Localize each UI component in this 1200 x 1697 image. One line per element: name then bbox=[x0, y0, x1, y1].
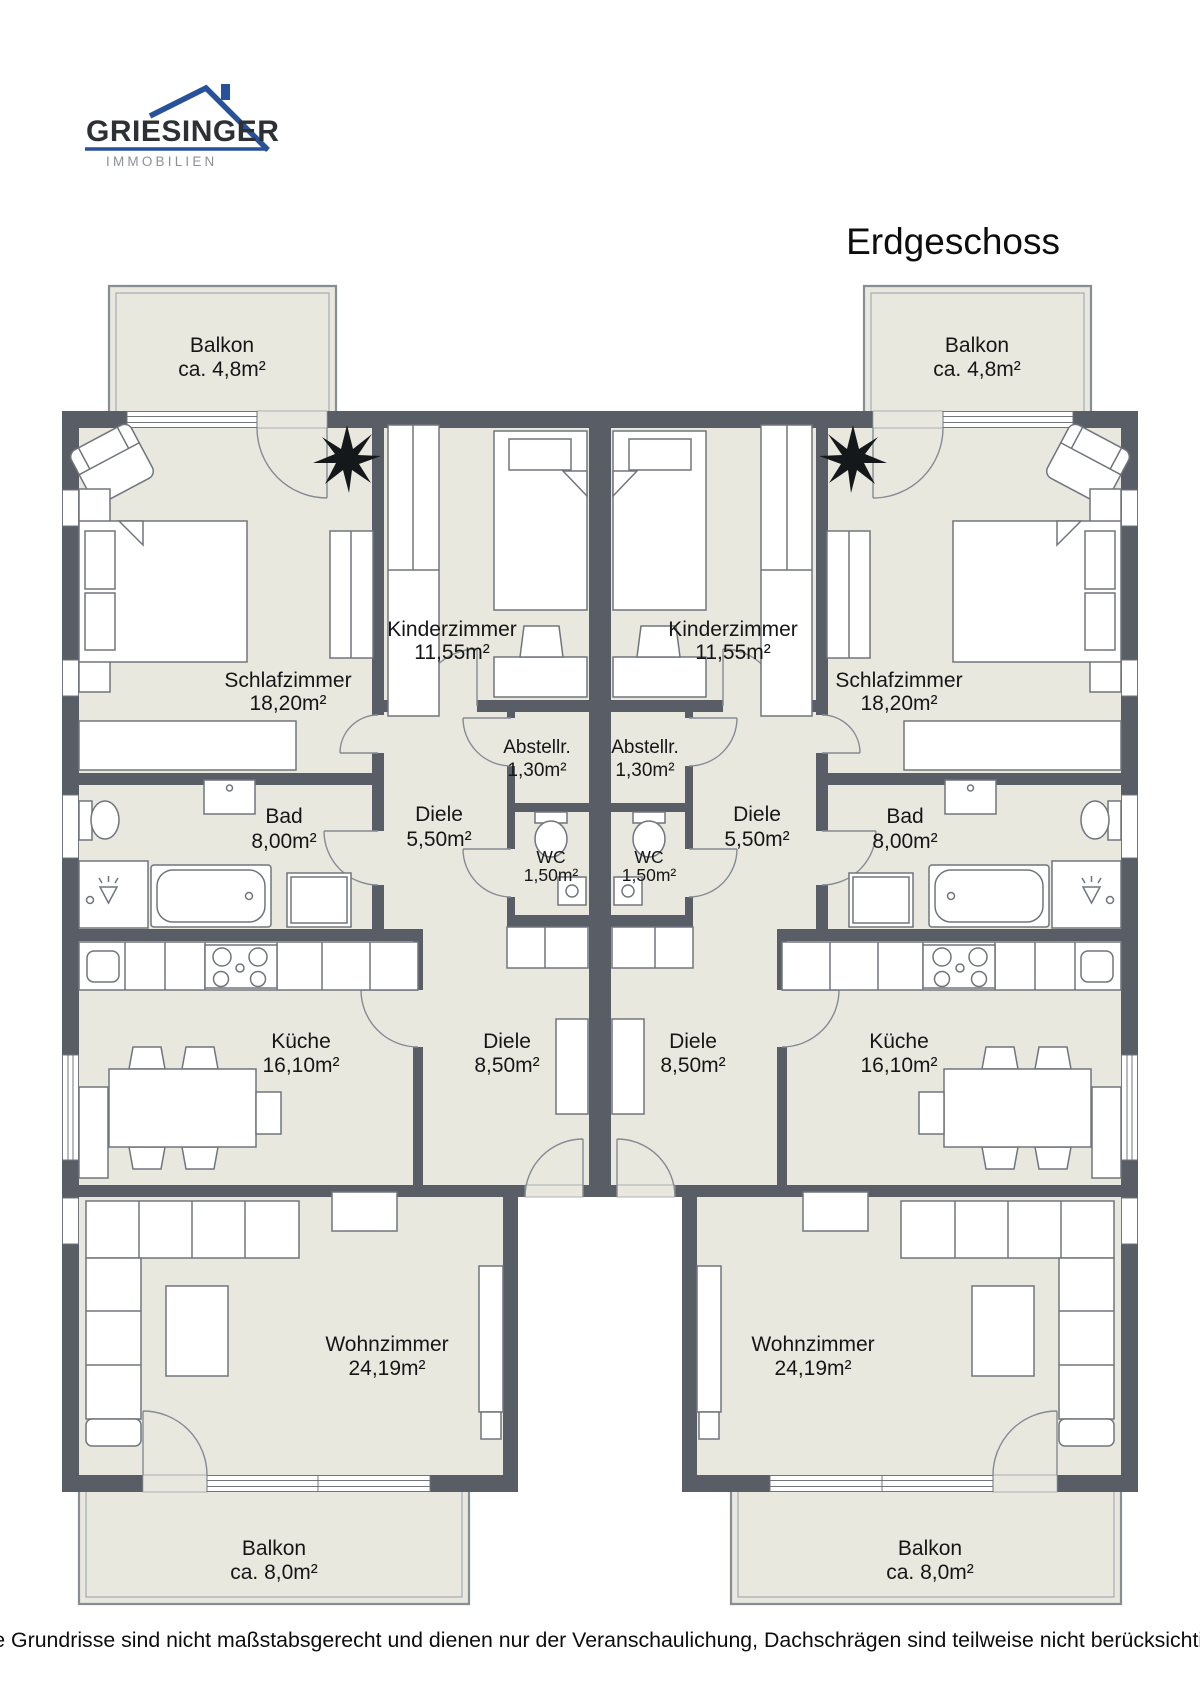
room-label-diele-klein-right-area: 5,50m² bbox=[724, 828, 789, 851]
room-label-diele-klein-right-name: Diele bbox=[733, 803, 781, 826]
room-label-abstellraum-right-name: Abstellr. bbox=[611, 737, 679, 758]
room-label-abstellraum-right-area: 1,30m² bbox=[615, 760, 674, 781]
room-label-bad-right-area: 8,00m² bbox=[872, 830, 937, 853]
room-label-diele-klein-left-name: Diele bbox=[415, 803, 463, 826]
party-wall bbox=[589, 411, 611, 1197]
brand-logo: GRIESINGER IMMOBILIEN bbox=[85, 84, 279, 169]
brand-name: GRIESINGER bbox=[86, 115, 279, 148]
room-label-wohnzimmer-left-area: 24,19m² bbox=[348, 1357, 425, 1380]
room-label-kueche-right-area: 16,10m² bbox=[860, 1054, 937, 1077]
room-label-diele-gross-left-area: 8,50m² bbox=[474, 1054, 539, 1077]
room-label-wohnzimmer-right-name: Wohnzimmer bbox=[751, 1333, 874, 1356]
room-label-abstellraum-left-name: Abstellr. bbox=[503, 737, 571, 758]
room-label-wc-left-area: 1,50m² bbox=[524, 865, 579, 885]
room-label-kinderzimmer-right-name: Kinderzimmer bbox=[668, 618, 798, 641]
floorplan-svg: Balkon ca. 4,8m² Schlafzimmer 18,20m² Ki… bbox=[0, 0, 1200, 1697]
room-label-abstellraum-left-area: 1,30m² bbox=[507, 760, 566, 781]
room-label-diele-gross-left-name: Diele bbox=[483, 1030, 531, 1053]
room-label-kinderzimmer-left-name: Kinderzimmer bbox=[387, 618, 517, 641]
logo-chimney-icon bbox=[221, 84, 230, 100]
room-label-balkon-unten-left-area: ca. 8,0m² bbox=[230, 1561, 318, 1584]
room-label-balkon-top-left-area: ca. 4,8m² bbox=[178, 358, 266, 381]
room-label-wc-left-name: WC bbox=[536, 847, 565, 867]
room-label-wohnzimmer-left-name: Wohnzimmer bbox=[325, 1333, 448, 1356]
room-label-kinderzimmer-left-area: 11,55m² bbox=[414, 641, 489, 664]
room-label-balkon-top-left-name: Balkon bbox=[190, 334, 254, 357]
room-label-wc-right-name: WC bbox=[634, 847, 663, 867]
floorplan-page: Balkon ca. 4,8m² Schlafzimmer 18,20m² Ki… bbox=[0, 0, 1200, 1697]
room-label-schlafzimmer-left-name: Schlafzimmer bbox=[224, 669, 351, 692]
room-label-balkon-unten-right-area: ca. 8,0m² bbox=[886, 1561, 974, 1584]
disclaimer-text: Die Grundrisse sind nicht maßstabsgerech… bbox=[0, 1628, 1200, 1652]
room-label-wc-right-area: 1,50m² bbox=[622, 865, 677, 885]
room-label-bad-left-area: 8,00m² bbox=[251, 830, 316, 853]
room-label-kueche-right-name: Küche bbox=[869, 1030, 929, 1053]
room-label-wohnzimmer-right-area: 24,19m² bbox=[774, 1357, 851, 1380]
room-label-bad-right-name: Bad bbox=[886, 805, 923, 828]
room-label-balkon-unten-left-name: Balkon bbox=[242, 1537, 306, 1560]
page-title: Erdgeschoss bbox=[846, 221, 1060, 262]
room-label-balkon-top-right-name: Balkon bbox=[945, 334, 1009, 357]
room-label-kueche-left-area: 16,10m² bbox=[262, 1054, 339, 1077]
room-label-diele-gross-right-name: Diele bbox=[669, 1030, 717, 1053]
room-label-kueche-left-name: Küche bbox=[271, 1030, 331, 1053]
room-label-kinderzimmer-right-area: 11,55m² bbox=[695, 641, 770, 664]
room-label-diele-klein-left-area: 5,50m² bbox=[406, 828, 471, 851]
room-label-balkon-unten-right-name: Balkon bbox=[898, 1537, 962, 1560]
brand-tagline: IMMOBILIEN bbox=[106, 154, 218, 169]
room-label-schlafzimmer-left-area: 18,20m² bbox=[249, 692, 326, 715]
room-label-schlafzimmer-right-name: Schlafzimmer bbox=[835, 669, 962, 692]
room-label-diele-gross-right-area: 8,50m² bbox=[660, 1054, 725, 1077]
room-label-schlafzimmer-right-area: 18,20m² bbox=[860, 692, 937, 715]
room-label-bad-left-name: Bad bbox=[265, 805, 302, 828]
room-label-balkon-top-right-area: ca. 4,8m² bbox=[933, 358, 1021, 381]
